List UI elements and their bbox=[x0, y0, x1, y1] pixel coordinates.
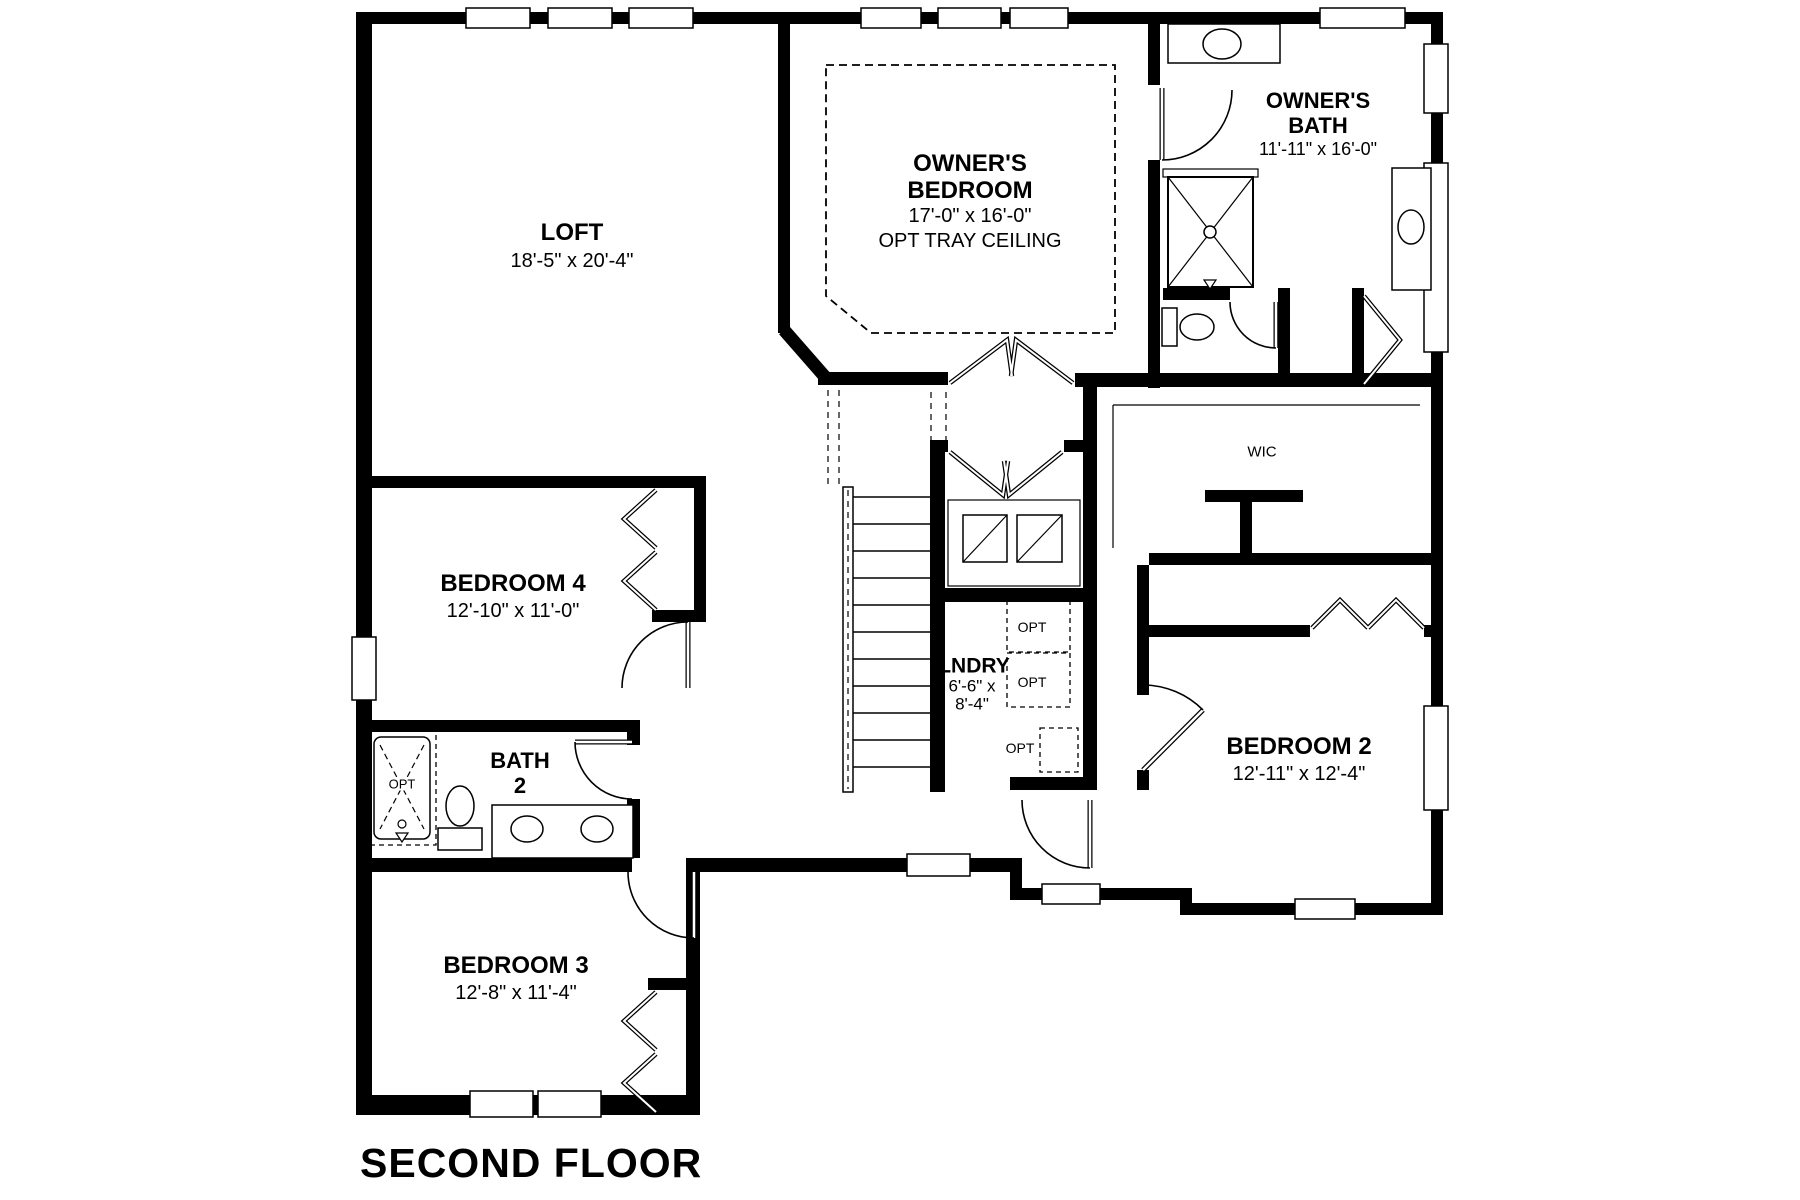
opt-laundry-label-2: OPT bbox=[1018, 675, 1047, 689]
window-bedroom3-1 bbox=[470, 1091, 533, 1117]
door-owners-bedroom bbox=[950, 340, 1073, 383]
window-bedroom2-bottom-1 bbox=[1042, 884, 1100, 904]
open-rail-dashes bbox=[828, 390, 946, 484]
loft-dims: 18'-5" x 20'-4" bbox=[510, 251, 633, 271]
door-toilet-room bbox=[1230, 302, 1276, 348]
toilet-bath2 bbox=[438, 786, 482, 850]
bath2-label-1: BATH bbox=[490, 750, 549, 772]
owners-bedroom-label-2: BEDROOM bbox=[907, 179, 1032, 203]
washer-dryer-closet bbox=[948, 500, 1080, 586]
door-linen-bifold bbox=[1364, 296, 1400, 384]
opt-laundry-label-3: OPT bbox=[1006, 741, 1035, 755]
door-bedroom4 bbox=[622, 622, 688, 688]
window-bedroom2-right bbox=[1424, 706, 1448, 810]
sink-right bbox=[1398, 210, 1424, 244]
loft-label: LOFT bbox=[541, 221, 604, 245]
stair-treads bbox=[853, 497, 930, 767]
owners-bedroom-label-1: OWNER'S bbox=[913, 152, 1027, 176]
shower bbox=[1168, 177, 1253, 289]
window-owners-bedroom-2 bbox=[938, 8, 1001, 28]
owners-bedroom-note: OPT TRAY CEILING bbox=[878, 231, 1061, 251]
bedroom3-label: BEDROOM 3 bbox=[443, 954, 588, 978]
bedroom4-label: BEDROOM 4 bbox=[440, 572, 585, 596]
owners-bedroom-dims: 17'-0" x 16'-0" bbox=[908, 206, 1031, 226]
door-bedroom3-closet-bifold bbox=[624, 992, 656, 1112]
bedroom2-label: BEDROOM 2 bbox=[1226, 735, 1371, 759]
laundry-dims-2: 8'-4" bbox=[955, 696, 989, 713]
window-bedroom3-2 bbox=[538, 1091, 601, 1117]
owners-bath-dims: 11'-11" x 16'-0" bbox=[1259, 140, 1377, 158]
owners-bath-label-1: OWNER'S bbox=[1266, 90, 1370, 112]
toilet-owners bbox=[1162, 308, 1214, 346]
wic-shelving bbox=[1113, 405, 1420, 548]
window-owners-bath-top bbox=[1320, 8, 1405, 28]
door-bedroom2 bbox=[1143, 685, 1203, 770]
window-loft-2 bbox=[548, 8, 612, 28]
opt-tub-label: OPT bbox=[387, 778, 418, 791]
door-bath2 bbox=[575, 742, 632, 799]
laundry-label: LNDRY bbox=[938, 656, 1010, 677]
laundry-dims-1: 6'-6" x bbox=[948, 678, 995, 695]
wic-label: WIC bbox=[1247, 445, 1276, 460]
door-bedroom2-closet-bifold bbox=[1312, 600, 1424, 628]
window-loft-3 bbox=[629, 8, 693, 28]
floor-title: SECOND FLOOR bbox=[360, 1140, 702, 1187]
floor-plan-page: LOFT 18'-5" x 20'-4" OWNER'S BEDROOM 17'… bbox=[0, 0, 1800, 1200]
window-bedroom2-bottom-2 bbox=[1295, 899, 1355, 919]
opt-box-3 bbox=[1040, 728, 1078, 772]
shower-door bbox=[1163, 169, 1258, 177]
door-hall-bedroom2 bbox=[1022, 800, 1090, 868]
window-owners-bedroom-3 bbox=[1010, 8, 1068, 28]
window-loft-1 bbox=[466, 8, 530, 28]
window-owners-bath-right-1 bbox=[1424, 44, 1448, 113]
sink-top bbox=[1203, 29, 1241, 59]
bedroom4-dims: 12'-10" x 11'-0" bbox=[447, 601, 580, 621]
bath2-label-2: 2 bbox=[514, 775, 526, 797]
door-laundry-closet bbox=[950, 452, 1062, 495]
window-hall-bottom bbox=[907, 854, 970, 876]
door-bedroom4-closet-bifold bbox=[624, 490, 656, 610]
floor-plan-drawing bbox=[0, 0, 1800, 1200]
double-vanity bbox=[492, 805, 633, 858]
bedroom2-dims: 12'-11" x 12'-4" bbox=[1233, 764, 1366, 784]
window-left-wall bbox=[352, 637, 376, 700]
door-owners-bath bbox=[1162, 88, 1232, 160]
door-bedroom3 bbox=[628, 872, 694, 938]
opt-laundry-label-1: OPT bbox=[1018, 620, 1047, 634]
window-owners-bedroom-1 bbox=[861, 8, 921, 28]
bedroom3-dims: 12'-8" x 11'-4" bbox=[455, 983, 577, 1003]
owners-bath-label-2: BATH bbox=[1288, 115, 1347, 137]
staircase bbox=[828, 390, 946, 792]
